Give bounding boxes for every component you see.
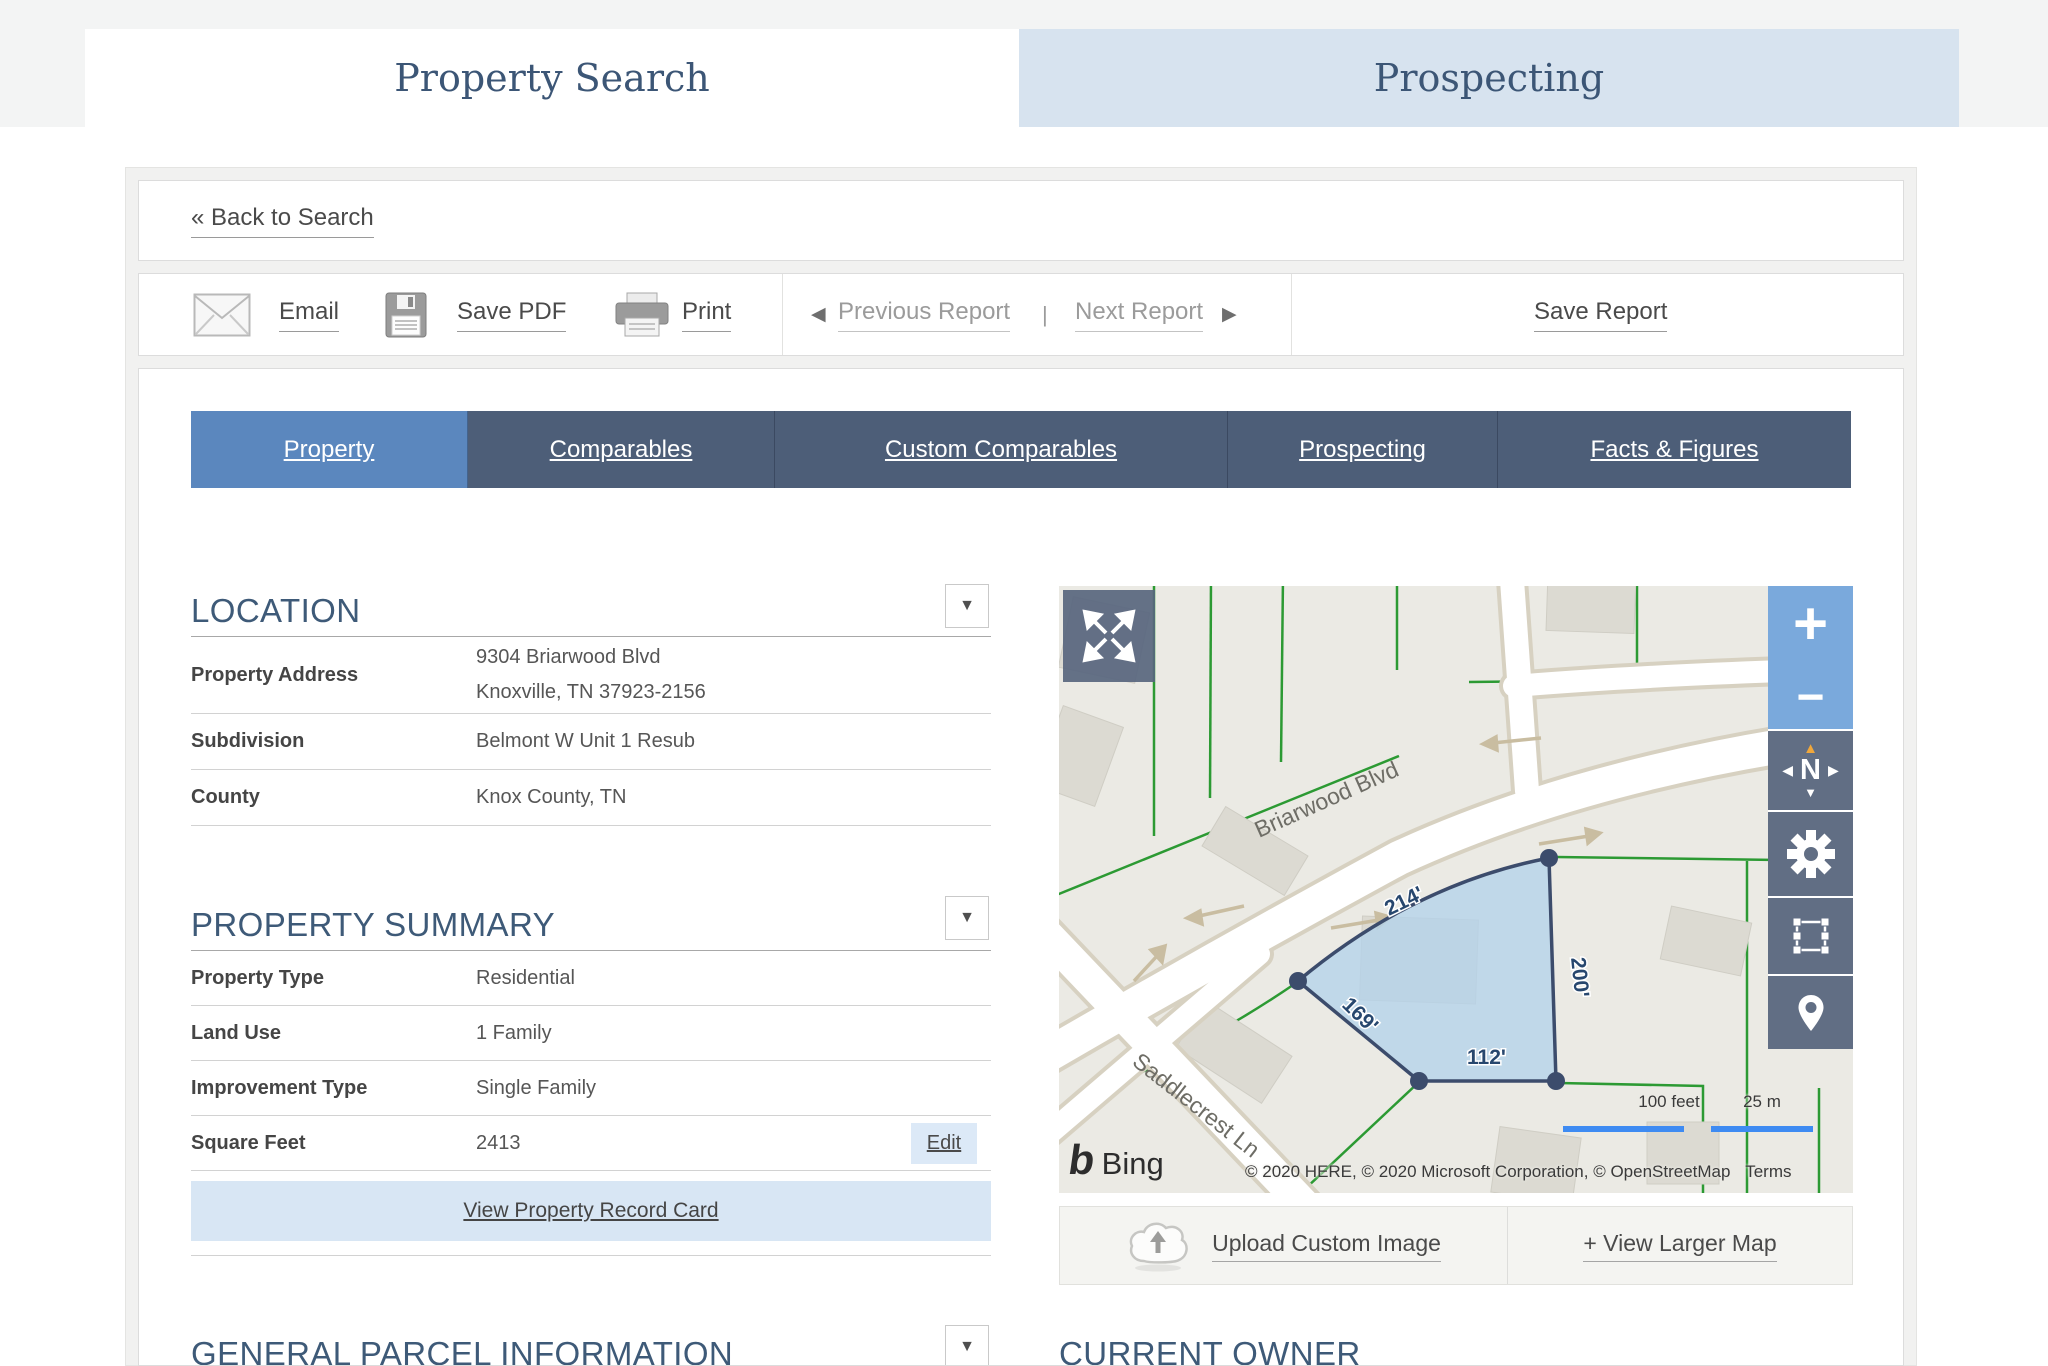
- report-container: « Back to Search Email: [125, 167, 1917, 1366]
- save-pdf-button[interactable]: Save PDF: [457, 274, 566, 355]
- upload-cloud-icon: [1126, 1219, 1190, 1273]
- tab-property[interactable]: Property: [191, 411, 468, 488]
- previous-report-button[interactable]: Previous Report: [838, 274, 1010, 355]
- tab-property-search[interactable]: Property Search: [85, 29, 1019, 127]
- rotate-left-icon[interactable]: ◀: [1782, 763, 1793, 777]
- summary-bottom-divider: [191, 1255, 991, 1256]
- property-address-line1: 9304 Briarwood Blvd: [476, 640, 991, 675]
- bing-logo: b Bing: [1069, 1136, 1164, 1184]
- map-actions-bar: Upload Custom Image + View Larger Map: [1059, 1206, 1853, 1285]
- tab-custom-comparables[interactable]: Custom Comparables: [775, 411, 1228, 488]
- map-attribution: © 2020 HERE, © 2020 Microsoft Corporatio…: [1245, 1162, 1792, 1182]
- tilt-down-icon[interactable]: ▼: [1804, 785, 1817, 801]
- back-to-search-link[interactable]: « Back to Search: [191, 204, 374, 238]
- map-pin-button[interactable]: [1768, 974, 1853, 1049]
- measure-icon: [1787, 912, 1835, 960]
- improvement-type-row: Improvement Type Single Family: [191, 1061, 991, 1116]
- scale-bar-feet: [1563, 1126, 1684, 1132]
- rotate-right-icon[interactable]: ▶: [1828, 763, 1839, 777]
- zoom-in-button[interactable]: +: [1768, 594, 1853, 654]
- email-button[interactable]: Email: [279, 274, 339, 355]
- bing-logo-mark: b: [1066, 1136, 1098, 1184]
- land-use-value: 1 Family: [476, 1016, 991, 1051]
- improvement-type-value: Single Family: [476, 1071, 991, 1106]
- measure-parcel-button[interactable]: [1768, 896, 1853, 974]
- expand-icon: [1063, 590, 1155, 682]
- county-value: Knox County, TN: [476, 780, 991, 815]
- view-property-record-card-button[interactable]: View Property Record Card: [191, 1181, 991, 1241]
- dimension-label-right: 200': [1566, 956, 1593, 998]
- report-toolbar: Email Save PDF: [138, 273, 1904, 356]
- edit-square-feet-button[interactable]: Edit: [911, 1123, 977, 1164]
- previous-report-arrow-icon: ◀: [811, 274, 826, 355]
- zoom-panel: + −: [1768, 586, 1853, 729]
- tab-prospecting-top[interactable]: Prospecting: [1019, 29, 1959, 127]
- location-collapse-button[interactable]: ▼: [945, 584, 989, 628]
- location-pin-icon: [1787, 989, 1835, 1037]
- tab-prospecting[interactable]: Prospecting: [1228, 411, 1498, 488]
- toolbar-divider-2: [1291, 274, 1292, 355]
- email-icon: [193, 274, 251, 355]
- upload-custom-image-button[interactable]: Upload Custom Image: [1060, 1207, 1508, 1284]
- property-address-row: Property Address 9304 Briarwood Blvd Kno…: [191, 637, 991, 714]
- land-use-row: Land Use 1 Family: [191, 1006, 991, 1061]
- compass-n-label: N: [1800, 756, 1821, 785]
- view-larger-map-link[interactable]: + View Larger Map: [1508, 1207, 1852, 1284]
- print-button[interactable]: Print: [682, 274, 731, 355]
- subdivision-row: Subdivision Belmont W Unit 1 Resub: [191, 714, 991, 770]
- gear-icon: [1785, 828, 1837, 880]
- county-row: County Knox County, TN: [191, 770, 991, 826]
- report-body: Property Comparables Custom Comparables …: [138, 368, 1904, 1366]
- tab-comparables[interactable]: Comparables: [468, 411, 775, 488]
- map-fullscreen-button[interactable]: [1063, 590, 1155, 682]
- scale-bar-meters: [1711, 1126, 1813, 1132]
- parcel-map[interactable]: Briarwood Blvd Saddlecrest Ln 214' 200' …: [1059, 586, 1853, 1193]
- bing-logo-text: Bing: [1102, 1146, 1164, 1182]
- general-parcel-heading: GENERAL PARCEL INFORMATION: [191, 1321, 991, 1366]
- square-feet-row: Square Feet 2413 Edit: [191, 1116, 991, 1171]
- print-icon: [614, 274, 670, 355]
- tab-facts-figures[interactable]: Facts & Figures: [1498, 411, 1851, 488]
- property-report-page: Property Search Prospecting « Back to Se…: [0, 0, 2048, 1366]
- property-type-row: Property Type Residential: [191, 951, 991, 1006]
- back-box: « Back to Search: [138, 180, 1904, 261]
- next-report-arrow-icon: ▶: [1222, 274, 1237, 355]
- save-pdf-icon: [385, 274, 427, 355]
- location-heading: LOCATION: [191, 579, 991, 637]
- zoom-out-button[interactable]: −: [1768, 674, 1853, 722]
- subdivision-value: Belmont W Unit 1 Resub: [476, 724, 991, 759]
- dimension-label-bottom: 112': [1467, 1046, 1506, 1069]
- top-tab-strip: Property Search Prospecting: [0, 0, 2048, 127]
- report-nav-tabs: Property Comparables Custom Comparables …: [191, 411, 1854, 488]
- property-summary-heading: PROPERTY SUMMARY: [191, 893, 991, 951]
- property-type-value: Residential: [476, 961, 991, 996]
- save-report-button[interactable]: Save Report: [1534, 274, 1667, 355]
- map-settings-button[interactable]: [1768, 810, 1853, 896]
- property-address-line2: Knoxville, TN 37923-2156: [476, 675, 991, 710]
- map-terms-link[interactable]: Terms: [1745, 1162, 1791, 1181]
- general-parcel-collapse-button[interactable]: ▼: [945, 1325, 989, 1366]
- current-owner-heading: CURRENT OWNER: [1059, 1321, 1859, 1366]
- report-nav-separator: |: [1042, 274, 1048, 355]
- property-summary-collapse-button[interactable]: ▼: [945, 896, 989, 940]
- compass-control[interactable]: ▲ ◀ N ▶ ▼: [1768, 729, 1853, 810]
- next-report-button[interactable]: Next Report: [1075, 274, 1203, 355]
- toolbar-divider-1: [782, 274, 783, 355]
- scale-meters-label: 25 m: [1707, 1092, 1817, 1112]
- map-controls: + − ▲ ◀ N ▶ ▼: [1768, 586, 1853, 1049]
